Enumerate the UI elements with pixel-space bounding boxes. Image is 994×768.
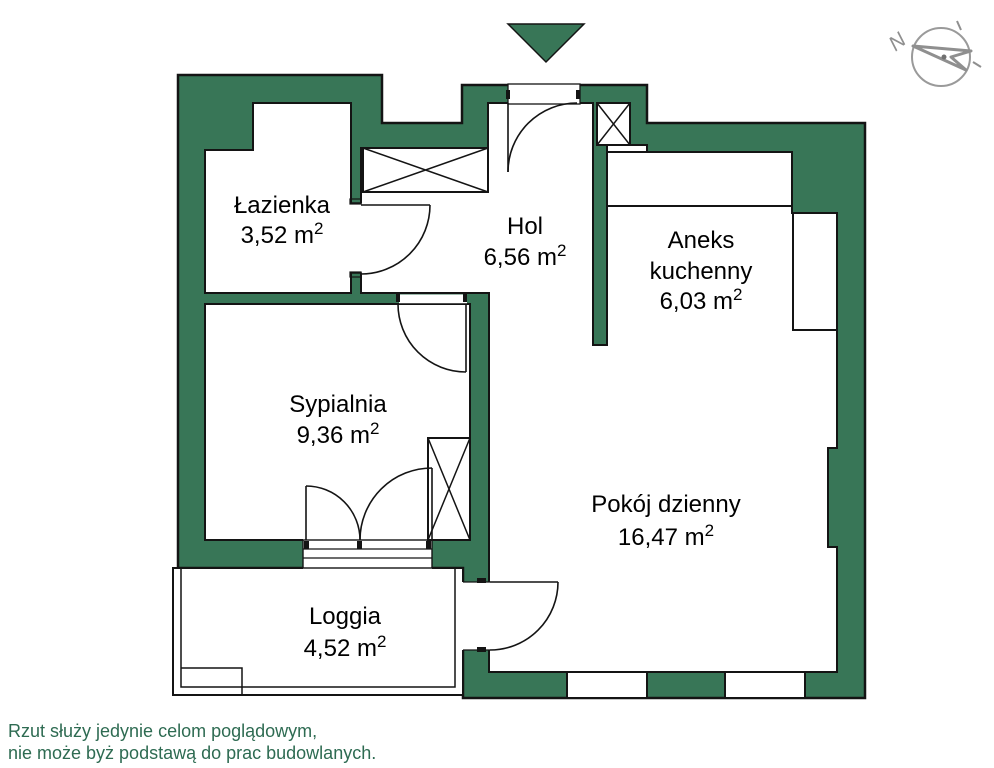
entrance-arrow-icon <box>508 24 584 62</box>
disclaimer-line1: Rzut służy jedynie celom poglądowym, <box>8 721 317 741</box>
compass-north-label: N <box>884 28 911 56</box>
bedroom-door-opening <box>396 293 467 304</box>
room-area: 3,52 m2 <box>241 219 324 249</box>
room-name: Łazienka <box>234 192 331 219</box>
bathroom-door-opening <box>349 199 363 277</box>
wardrobe-sypialnia-symbol <box>428 438 470 540</box>
room-area: 9,36 m2 <box>297 419 380 449</box>
shaft-symbol <box>597 103 630 145</box>
room-area: 6,56 m2 <box>484 241 567 271</box>
room-area: 4,52 m2 <box>304 632 387 662</box>
kitchen-counter-side <box>793 213 837 330</box>
wardrobe-hol-symbol <box>363 148 488 192</box>
floor-plan: N Łazienka 3,52 m2 Hol 6,56 m2 Aneks kuc… <box>0 0 994 768</box>
room-name: Pokój dzienny <box>591 491 740 518</box>
room-name: Hol <box>507 213 543 240</box>
compass-icon: N <box>884 21 981 86</box>
loggia-door-opening <box>461 578 492 652</box>
room-name-line2: kuchenny <box>650 258 753 285</box>
room-name: Loggia <box>309 603 382 630</box>
window-living-1 <box>567 672 647 698</box>
room-name: Aneks <box>668 227 735 254</box>
kitchen-counter-top <box>607 152 792 206</box>
entrance-opening <box>506 84 580 104</box>
disclaimer-line2: nie może byż podstawą do prac budowlanyc… <box>8 743 376 763</box>
loggia-outline <box>173 568 463 695</box>
balcony-door-opening <box>303 539 432 570</box>
window-living-2 <box>725 672 805 698</box>
room-area: 16,47 m2 <box>618 521 714 551</box>
room-area: 6,03 m2 <box>660 285 743 315</box>
room-name: Sypialnia <box>289 391 387 418</box>
